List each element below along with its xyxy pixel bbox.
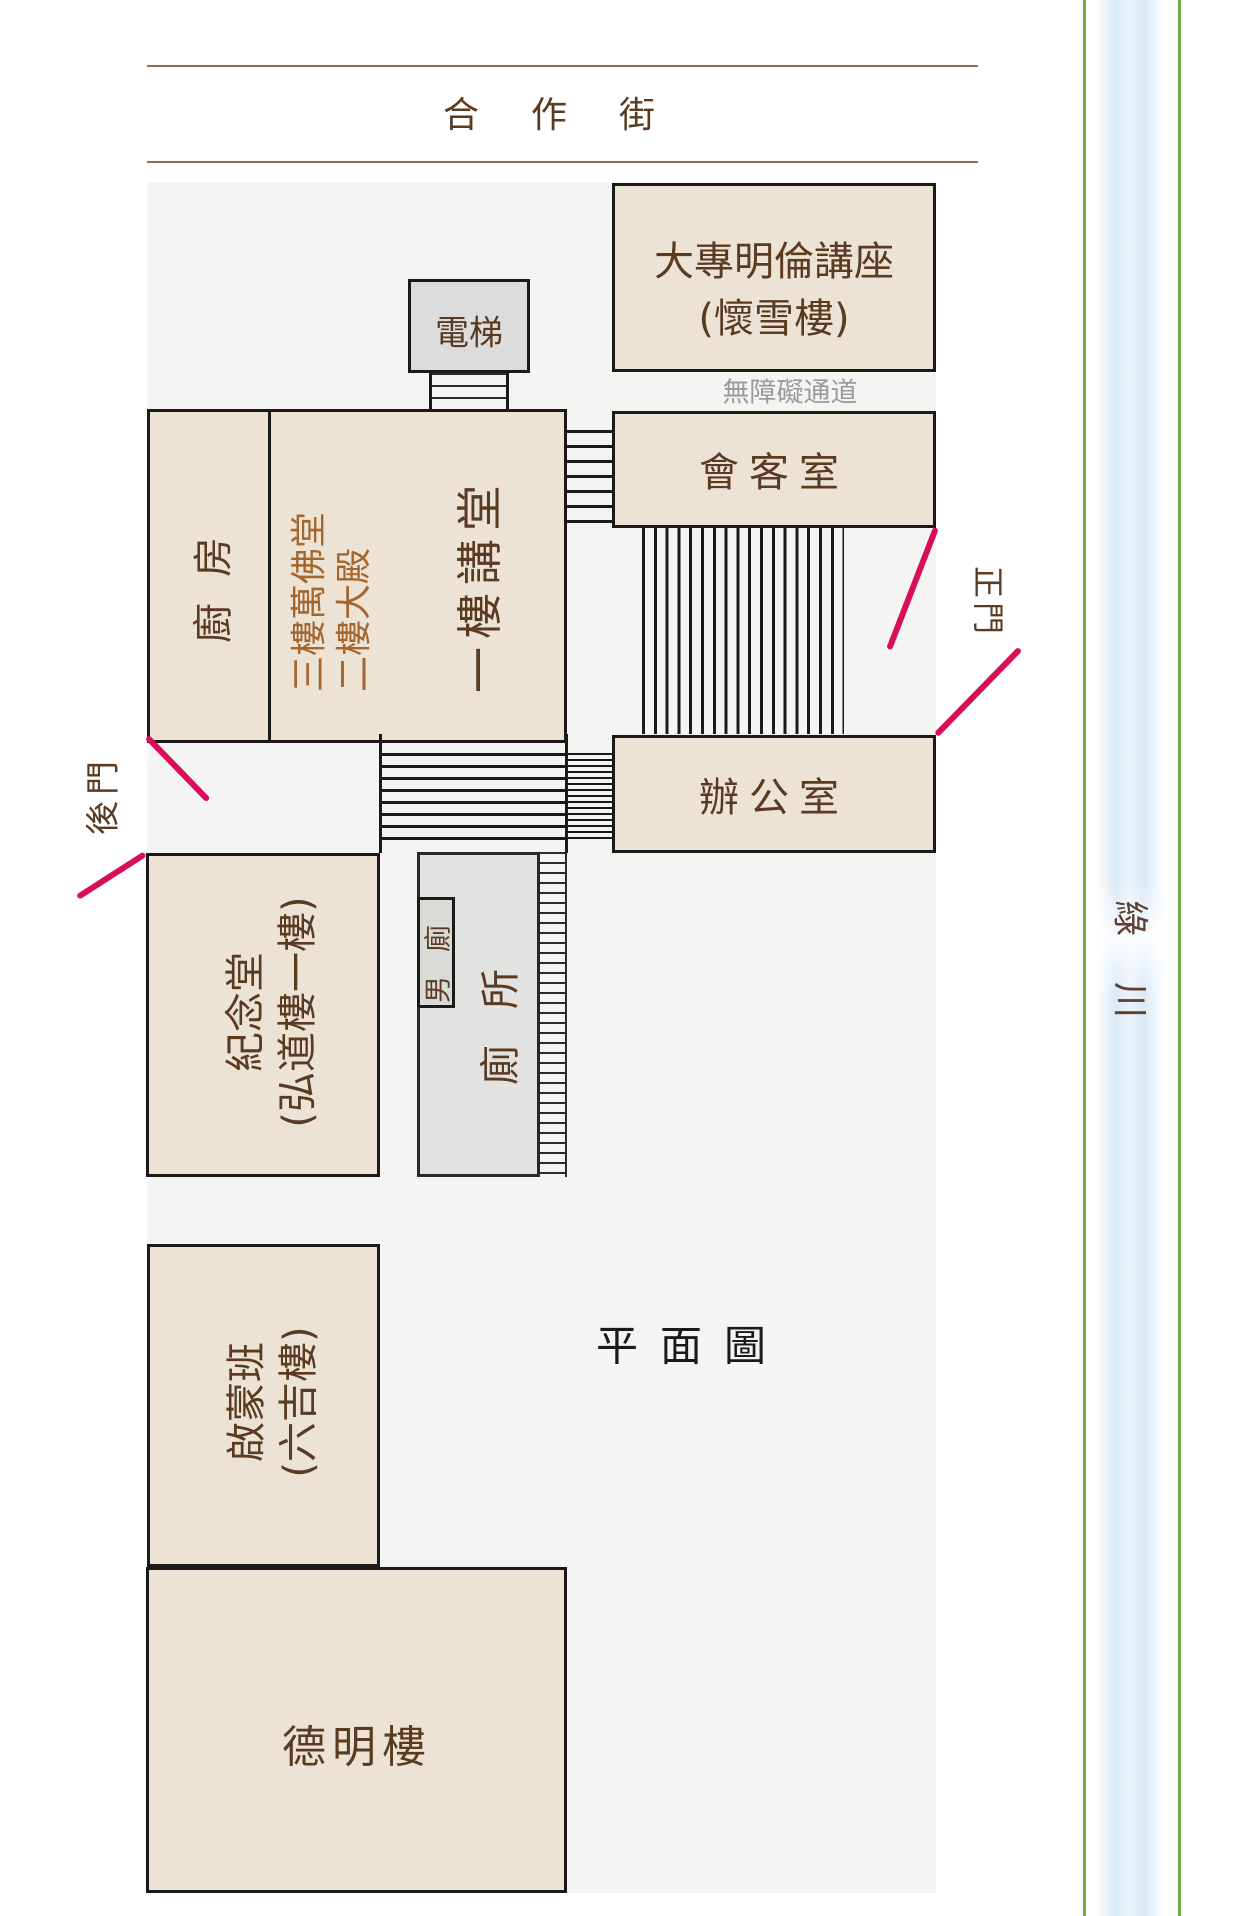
- upper-floors-line1: 三樓萬佛堂: [287, 512, 332, 692]
- enlightenment-class-line2: (六吉樓): [273, 1326, 325, 1477]
- toilet-side-ladder: [538, 852, 567, 1177]
- enlightenment-class-line1: 啟蒙班: [221, 1326, 273, 1477]
- back-gate-stroke-lower: [76, 851, 147, 899]
- front-grand-staircase: [642, 528, 844, 734]
- floor-plan-canvas: 合作街 大專明倫講座 (懷雪樓) 無障礙通道 電梯 廚房 三樓萬佛堂 二樓大殿 …: [0, 0, 1248, 1916]
- river-bank-line-left: [1083, 0, 1086, 1916]
- enlightenment-class-label: 啟蒙班 (六吉樓): [221, 1326, 325, 1477]
- memorial-hall-label: 紀念堂 (弘道樓一樓): [220, 896, 324, 1127]
- plan-title: 平面圖: [596, 1313, 788, 1374]
- room-toilet-label: 廁所: [468, 933, 526, 1085]
- memorial-hall-line1: 紀念堂: [220, 896, 272, 1127]
- side-staircase-upper-flight: [568, 753, 612, 840]
- room-deming-building-label: 德明樓: [282, 1711, 432, 1775]
- room-office-label: 辦公室: [699, 765, 849, 823]
- room-lecture-tower-label-line2: (懷雪樓): [698, 286, 849, 344]
- river-label: 綠川: [1107, 900, 1159, 1064]
- elevator-stairs: [429, 373, 509, 411]
- main-gate-label: 正門: [967, 566, 1013, 638]
- reception-stairs: [567, 430, 612, 523]
- kitchen-partition-wall: [268, 409, 271, 743]
- room-reception-label: 會客室: [699, 440, 849, 498]
- river-bank-line-right: [1178, 0, 1181, 1916]
- street-top-line: [147, 65, 978, 67]
- upper-floors-line2: 二樓大殿: [332, 512, 377, 692]
- room-mens-toilet-label: 男廁: [417, 901, 456, 1003]
- accessible-path-label: 無障礙通道: [723, 371, 858, 410]
- main-gate-stroke-lower: [934, 647, 1022, 737]
- side-staircase: [382, 753, 567, 840]
- room-kitchen-label: 廚房: [181, 511, 239, 643]
- room-first-floor-hall-label: 一樓講堂: [444, 477, 510, 693]
- room-elevator-label: 電梯: [435, 306, 503, 355]
- memorial-hall-line2: (弘道樓一樓): [272, 896, 324, 1127]
- back-gate-label: 後門: [76, 755, 125, 835]
- room-lecture-tower-label-line1: 大專明倫講座: [654, 229, 894, 287]
- street-label: 合作街: [443, 86, 707, 138]
- upper-floors-label: 三樓萬佛堂 二樓大殿: [287, 512, 377, 692]
- street-bottom-line: [147, 161, 978, 163]
